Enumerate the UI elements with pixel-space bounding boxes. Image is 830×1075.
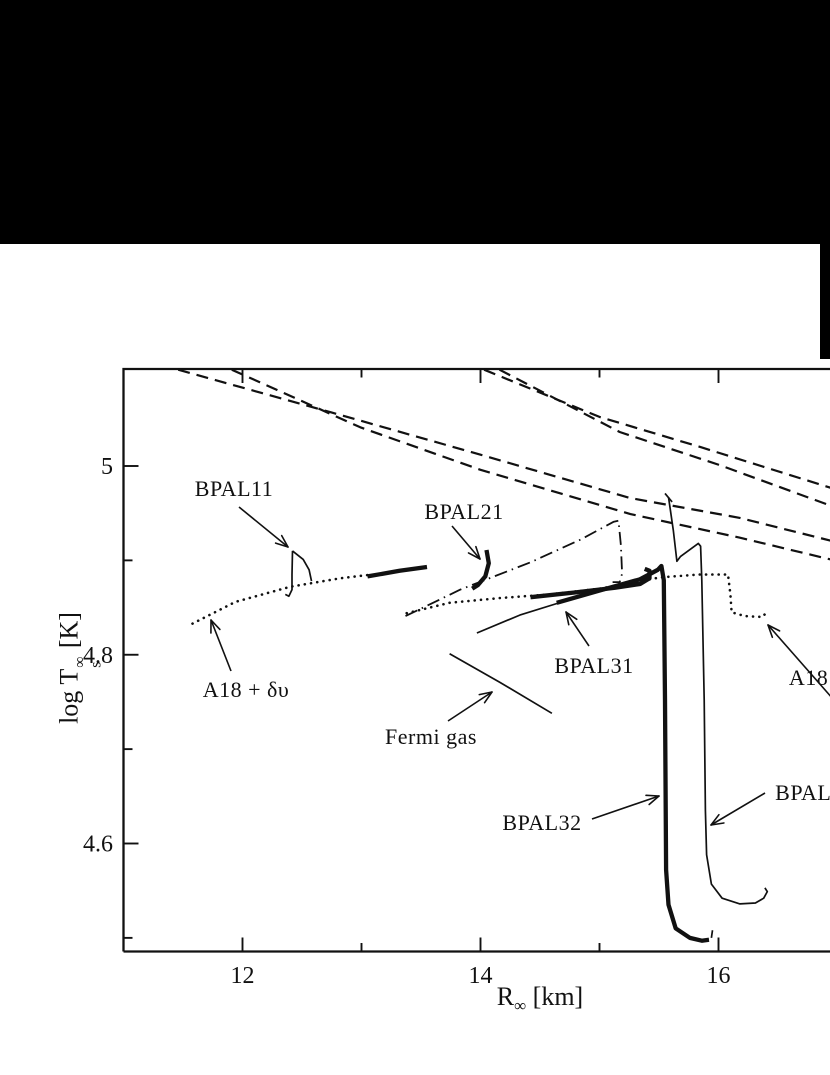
series-bpal32-curve xyxy=(557,566,709,941)
y-axis-title-supsub: ∞s xyxy=(73,657,106,668)
x-tick-label: 12 xyxy=(231,963,255,989)
y-tick-label: 5 xyxy=(101,454,113,480)
series-a18-dv-dotted xyxy=(193,575,373,624)
arrow-bpal32 xyxy=(592,796,659,819)
x-tick-label: 16 xyxy=(707,963,731,989)
series-dashed-upper-left-2 xyxy=(232,370,830,560)
curve-label-bpal33-clipped: BPAL3 xyxy=(775,780,830,806)
x-axis-title-subscript: ∞ xyxy=(514,996,526,1015)
arrow-bpal33 xyxy=(711,793,765,825)
plot-frame xyxy=(124,369,830,952)
arrow-fermi-gas xyxy=(448,692,492,721)
arrow-bpal11 xyxy=(239,507,288,547)
arrow-bpal21 xyxy=(452,526,480,559)
series-bpal11-curve xyxy=(293,551,312,581)
series-dashed-upper-right-2 xyxy=(500,370,830,506)
curve-label-bpal21: BPAL21 xyxy=(424,499,503,525)
series-fermi-gas-curve xyxy=(450,654,552,714)
curve-label-fermi-gas: Fermi gas xyxy=(385,724,477,750)
series-bpal32-end-tick xyxy=(711,930,712,938)
series-dashed-upper-left-1 xyxy=(178,370,830,541)
arrowhead-bpal32 xyxy=(646,795,659,796)
arrow-a18-dv xyxy=(211,620,231,671)
curve-label-a18-dv: A18 + δυ xyxy=(203,677,290,703)
x-axis-title: R∞ [km] xyxy=(497,982,583,1016)
series-bpal32-rise-thin xyxy=(477,601,565,633)
series-bpal11-curve xyxy=(285,551,292,596)
y-tick-label: 4.6 xyxy=(83,832,113,858)
top-black-banner xyxy=(0,0,830,244)
series-thick-segment-13km xyxy=(368,567,428,576)
series-bpal33-curve xyxy=(669,497,768,904)
arrow-bpal31 xyxy=(566,612,589,646)
y-axis-title: log T∞s [K] xyxy=(55,612,106,724)
curve-label-bpal11: BPAL11 xyxy=(195,476,273,502)
curve-label-bpal31: BPAL31 xyxy=(554,653,633,679)
curve-label-bpal32: BPAL32 xyxy=(502,810,581,836)
figure-canvas: 12141654.84.6 BPAL11 BPAL21 BPAL31 BPAL3… xyxy=(0,0,830,1075)
x-tick-label: 14 xyxy=(469,963,493,989)
right-black-strip xyxy=(820,0,830,359)
curve-label-a18-right-clipped: A18 + xyxy=(789,665,830,691)
series-dash-dot-curve xyxy=(406,521,623,616)
